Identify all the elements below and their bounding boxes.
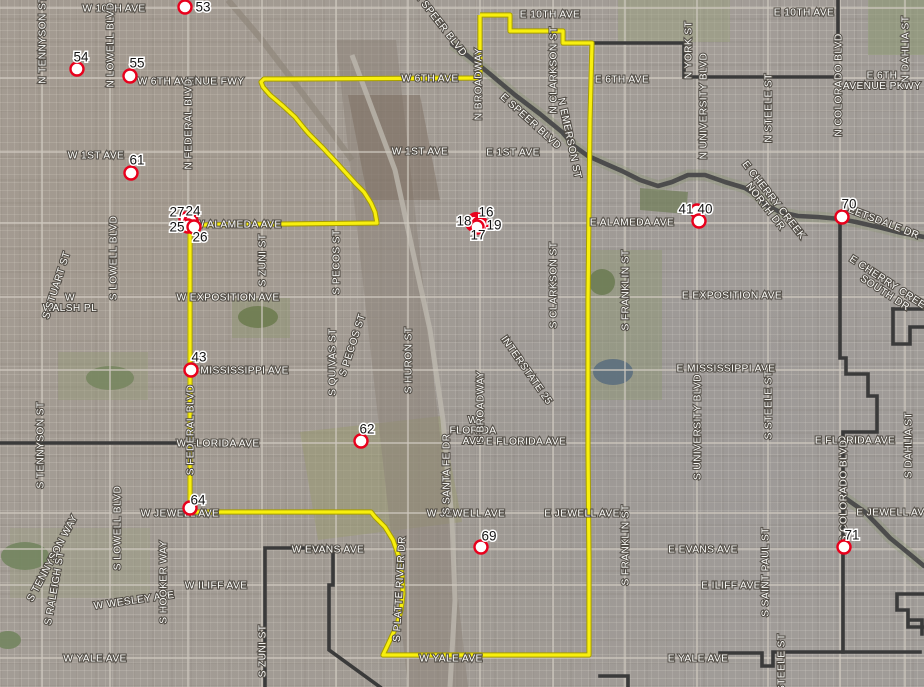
- street-label: S HURON ST: [404, 327, 415, 394]
- poi-marker-label-40: 40: [697, 202, 712, 217]
- street-label: W 1ST AVE: [392, 147, 448, 158]
- poi-marker-label-61: 61: [129, 153, 144, 168]
- street-label: E CHERRY CREEKNORTH DR: [731, 159, 807, 248]
- street-label-group: W EXPOSITION AVE: [176, 293, 279, 304]
- street-label-group: N TENNYSON ST: [38, 0, 49, 84]
- poi-marker-label-18: 18: [456, 214, 471, 229]
- street-label-group: S SANTA FE DR: [442, 434, 453, 515]
- poi-marker-label-70: 70: [841, 197, 856, 212]
- street-label-group: S QUIVAS ST: [328, 328, 339, 396]
- street-label-group: W 1ST AVE: [68, 151, 124, 162]
- street-label: W YALE AVE: [419, 654, 482, 665]
- poi-marker-label-27: 27: [169, 205, 184, 220]
- street-label-group: S HOOKER WAY: [159, 540, 170, 623]
- street-label-group: W JEWELL AVE: [141, 509, 219, 520]
- street-label-group: N COLORADO BLVD: [834, 33, 845, 136]
- street-label: N YORK ST: [684, 21, 695, 79]
- street-label-group: E JEWELL AVE: [544, 509, 620, 520]
- poi-marker-70[interactable]: [836, 211, 849, 224]
- poi-marker-label-26: 26: [192, 230, 207, 245]
- street-label: N DAHLIA ST: [901, 16, 912, 83]
- street-label: S LOWELL BLVD: [113, 486, 124, 570]
- aerial-map-canvas: W 10TH AVEE 10TH AVEE 10TH AVEW 6TH AVEN…: [0, 0, 924, 687]
- street-label: S HOOKER WAY: [159, 540, 170, 623]
- street-label-group: W JEWELL AVE: [427, 509, 505, 520]
- street-label-group: W 6TH AVE: [401, 74, 458, 85]
- street-label: S STEELE ST: [764, 371, 775, 440]
- water-or-park-patch: [238, 306, 278, 328]
- street-label: S BROADWAY: [476, 371, 487, 443]
- street-label: W ILIFF AVE: [185, 581, 248, 592]
- street-label: S FRANKLIN ST: [621, 249, 632, 330]
- street-label: S CLARKSON ST: [549, 242, 560, 329]
- city-boundary-line: [600, 676, 628, 687]
- poi-marker-label-53: 53: [195, 0, 210, 15]
- street-label-group: E 10TH AVE: [520, 10, 580, 21]
- street-label-group: E CHERRY CREEKSOUTH DR: [841, 254, 924, 324]
- poi-marker-label-43: 43: [191, 350, 206, 365]
- street-label-group: E YALE AVE: [668, 654, 729, 665]
- city-boundary-line: [897, 594, 924, 627]
- street-label: S PECOS ST: [332, 229, 343, 294]
- street-label-group: S STEELE ST: [764, 371, 775, 440]
- street-label: E JEWELL AVE: [856, 508, 924, 519]
- street-label: N STEELE ST: [764, 73, 775, 143]
- street-label: S QUIVAS ST: [328, 328, 339, 396]
- poi-marker-label-54: 54: [73, 50, 89, 65]
- street-label-group: S HURON ST: [404, 327, 415, 394]
- street-label-group: W ILIFF AVE: [185, 581, 248, 592]
- street-label-group: E ILIFF AVE: [701, 581, 761, 592]
- street-label: S LOWELL BLVD: [109, 216, 120, 300]
- street-label-group: S PECOS ST: [338, 313, 369, 378]
- street-label: N FEDERAL BLVD: [184, 78, 195, 169]
- street-label-group: N FEDERAL BLVD: [184, 78, 195, 169]
- street-label: W MISSISSIPPI AVE: [187, 366, 289, 377]
- street-label: E FLORIDA AVE: [486, 437, 566, 448]
- street-label: W EXPOSITION AVE: [176, 293, 279, 304]
- poi-marker-label-25: 25: [169, 220, 184, 235]
- street-label-group: N BROADWAY: [474, 48, 485, 121]
- street-label-group: S LOWELL BLVD: [109, 216, 120, 300]
- street-label: N EMERSON ST: [555, 97, 583, 180]
- water-or-park-patch: [589, 269, 615, 295]
- street-label-group: S BROADWAY: [476, 371, 487, 443]
- street-label-group: E FLORIDA AVE: [815, 436, 895, 447]
- street-label: E ILIFF AVE: [701, 581, 761, 592]
- street-label-group: S FRANKLIN ST: [621, 504, 632, 585]
- street-label: S ZUNI ST: [258, 625, 269, 678]
- street-label-group: S ZUNI ST: [258, 625, 269, 678]
- street-label-group: S CLARKSON ST: [549, 242, 560, 329]
- street-label-group: E EVANS AVE: [668, 545, 738, 556]
- landuse-patch: [618, 0, 730, 42]
- street-label-group: S TENNYSON ST: [36, 401, 47, 488]
- street-label: S PECOS ST: [338, 313, 369, 378]
- street-label: S ZUNI ST: [258, 234, 269, 287]
- street-label: W 1ST AVE: [68, 151, 124, 162]
- street-label-group: S LOWELL BLVD: [113, 486, 124, 570]
- poi-marker-label-55: 55: [129, 56, 144, 71]
- street-label-group: E MISSISSIPPI AVE: [677, 364, 776, 375]
- street-label: E EVANS AVE: [668, 545, 738, 556]
- street-label-group: S DAHLIA ST: [904, 412, 915, 478]
- street-label-group: S FRANKLIN ST: [621, 249, 632, 330]
- street-label: S SANTA FE DR: [442, 434, 453, 515]
- poi-marker-label-64: 64: [190, 493, 206, 508]
- street-label-group: E JEWELL AVE: [856, 508, 924, 519]
- street-label: S FEDERAL BLVD: [186, 385, 197, 476]
- water-or-park-patch: [593, 359, 633, 385]
- street-label-group: N STEELE ST: [764, 73, 775, 143]
- street-label-group: W EVANS AVE: [292, 545, 365, 556]
- street-label-group: S PECOS ST: [332, 229, 343, 294]
- street-label-group: W YALE AVE: [63, 654, 126, 665]
- street-label-group: S STEELE ST: [777, 634, 788, 687]
- street-label: N UNIVERSITY BLVD: [699, 53, 710, 160]
- street-label-group: N DAHLIA ST: [901, 16, 912, 83]
- street-label-group: N UNIVERSITY BLVD: [699, 53, 710, 160]
- street-label: S FRANKLIN ST: [621, 504, 632, 585]
- street-label: E MISSISSIPPI AVE: [677, 364, 776, 375]
- poi-marker-label-69: 69: [481, 529, 496, 544]
- street-label-group: N YORK ST: [684, 21, 695, 79]
- poi-marker-label-24: 24: [185, 204, 201, 219]
- street-label: E JEWELL AVE: [544, 509, 620, 520]
- street-label: N BROADWAY: [474, 48, 485, 121]
- street-label: E ALAMEDA AVE: [590, 218, 674, 229]
- street-label: W EVANS AVE: [292, 545, 365, 556]
- water-or-park-patch: [0, 631, 21, 649]
- street-label-group: E 6TH AVE: [595, 75, 649, 86]
- street-label-group: W MISSISSIPPI AVE: [187, 366, 289, 377]
- street-label-group: E CHERRY CREEKNORTH DR: [731, 159, 807, 248]
- poi-marker-61[interactable]: [125, 167, 138, 180]
- street-label: N LOWELL BLVD: [106, 2, 117, 87]
- street-label-group: N EMERSON ST: [555, 97, 583, 180]
- street-label: E 1ST AVE: [486, 148, 540, 159]
- street-label: W YALE AVE: [63, 654, 126, 665]
- map-viewport[interactable]: W 10TH AVEE 10TH AVEE 10TH AVEW 6TH AVEN…: [0, 0, 924, 687]
- street-label: W 6TH AVE: [401, 74, 458, 85]
- street-label: N TENNYSON ST: [38, 0, 49, 84]
- street-label-group: E FLORIDA AVE: [486, 437, 566, 448]
- street-label: S DAHLIA ST: [904, 412, 915, 478]
- street-label: E CHERRY CREEKSOUTH DR: [841, 254, 924, 324]
- poi-marker-55[interactable]: [124, 70, 137, 83]
- poi-marker-53[interactable]: [179, 1, 192, 14]
- city-boundary-line: [893, 309, 924, 344]
- street-label: E FLORIDA AVE: [815, 436, 895, 447]
- street-label-group: N LOWELL BLVD: [106, 2, 117, 87]
- street-label: E 6TH AVE: [595, 75, 649, 86]
- street-label: E 10TH AVE: [774, 8, 834, 19]
- street-label: S UNIVERSITY BLVD: [693, 374, 704, 480]
- street-label: E YALE AVE: [668, 654, 729, 665]
- poi-marker-label-62: 62: [359, 422, 374, 437]
- poi-marker-label-41: 41: [678, 202, 693, 217]
- poi-marker-43[interactable]: [185, 364, 198, 377]
- poi-marker-label-71: 71: [844, 528, 859, 543]
- street-label: E EXPOSITION AVE: [682, 291, 782, 302]
- street-label-group: S SAINT PAUL ST: [761, 527, 772, 617]
- poi-marker-label-19: 19: [486, 218, 501, 233]
- street-label: W JEWELL AVE: [141, 509, 219, 520]
- street-label: S STEELE ST: [777, 634, 788, 687]
- street-label: N COLORADO BLVD: [834, 33, 845, 136]
- street-label-group: W 1ST AVE: [392, 147, 448, 158]
- street-label-group: W YALE AVE: [419, 654, 482, 665]
- street-label-group: E ALAMEDA AVE: [590, 218, 674, 229]
- street-label-group: E 10TH AVE: [774, 8, 834, 19]
- street-label-group: E EXPOSITION AVE: [682, 291, 782, 302]
- city-boundary-line: [592, 43, 837, 77]
- street-label-group: S FEDERAL BLVD: [186, 385, 197, 476]
- street-label-group: S UNIVERSITY BLVD: [693, 374, 704, 480]
- street-label-group: E 1ST AVE: [486, 148, 540, 159]
- poi-marker-label-17: 17: [470, 228, 485, 243]
- street-label: S TENNYSON ST: [36, 401, 47, 488]
- street-label: E 10TH AVE: [520, 10, 580, 21]
- city-boundary-line: [265, 548, 380, 687]
- street-label: S SAINT PAUL ST: [761, 527, 772, 617]
- street-label: W JEWELL AVE: [427, 509, 505, 520]
- street-label-group: S ZUNI ST: [258, 234, 269, 287]
